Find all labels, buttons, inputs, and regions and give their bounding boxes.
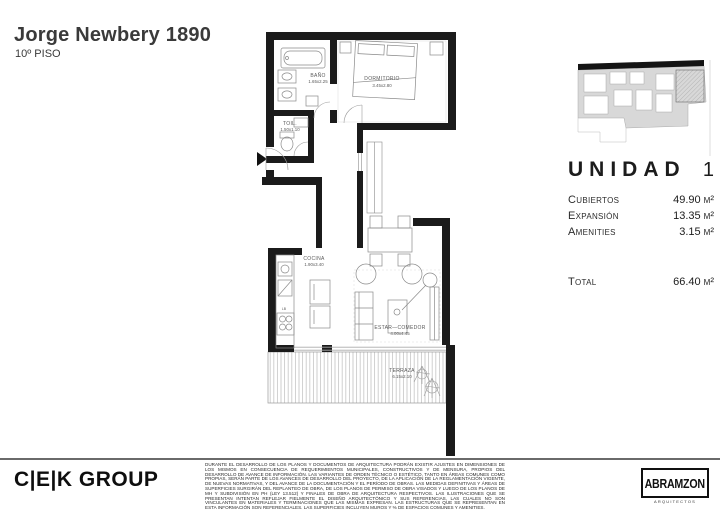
- area-row-label: Amenities: [568, 226, 616, 238]
- abramzon-tagline: ARQUITECTOS: [641, 499, 709, 504]
- key-plan: [570, 40, 718, 158]
- closet: [367, 142, 382, 213]
- area-row-expansion: Expansión 13.35 m²: [568, 210, 714, 226]
- kitchen-note: LB: [282, 307, 287, 311]
- area-row-value: 13.35 m²: [673, 210, 714, 222]
- living-furniture: [354, 216, 440, 342]
- area-row-value: 49.90 m²: [673, 194, 714, 206]
- room-label-bano: BAÑO: [310, 72, 325, 79]
- room-dims-toilette: 1.50x1.10: [280, 127, 300, 132]
- footer-divider: [0, 458, 720, 460]
- floor-subtitle: 10º PISO: [15, 48, 61, 60]
- page-title: Jorge Newbery 1890: [14, 24, 211, 47]
- cek-group-logo: C|E|K GROUP: [14, 468, 158, 492]
- unit-label: UNIDAD: [568, 158, 686, 182]
- area-row-value: 3.15 m²: [679, 226, 714, 238]
- room-dims-terraza: 6.15x2.10: [392, 374, 412, 379]
- area-row-total: Total 66.40 m²: [568, 276, 714, 292]
- room-dims-cocina: 1.90x3.40: [304, 262, 324, 267]
- room-dims-bano: 1.65x2.25: [308, 79, 328, 84]
- entry-arrow-icon: [257, 152, 267, 166]
- floor-plan: BAÑO 1.65x2.25 TOIL. 1.50x1.10 DORMITORI…: [254, 22, 464, 462]
- area-row-amenities: Amenities 3.15 m²: [568, 226, 714, 242]
- key-plan-highlighted-unit: [676, 70, 704, 102]
- area-row-label: Expansión: [568, 210, 619, 222]
- terraza-deck: [268, 352, 446, 403]
- area-row-label: Cubiertos: [568, 194, 619, 206]
- legal-disclaimer: DURANTE EL DESARROLLO DE LOS PLANOS Y DO…: [205, 463, 505, 511]
- area-table: Cubiertos 49.90 m² Expansión 13.35 m² Am…: [568, 194, 714, 292]
- unit-number: 1: [703, 159, 714, 182]
- room-dims-estar: 4.00x4.45: [390, 331, 410, 336]
- abramzon-logo: ABRAMZON: [641, 468, 709, 498]
- room-label-dormitorio: DORMITORIO: [364, 76, 399, 82]
- room-dims-dormitorio: 3.45x2.80: [372, 83, 392, 88]
- area-row-cubiertos: Cubiertos 49.90 m²: [568, 194, 714, 210]
- total-label: Total: [568, 276, 597, 288]
- kitchen-fixtures: [276, 255, 330, 348]
- total-value: 66.40 m²: [673, 276, 714, 288]
- unit-panel: UNIDAD 1 Cubiertos 49.90 m² Expansión 13…: [568, 158, 714, 292]
- abramzon-name: ABRAMZON: [645, 476, 705, 491]
